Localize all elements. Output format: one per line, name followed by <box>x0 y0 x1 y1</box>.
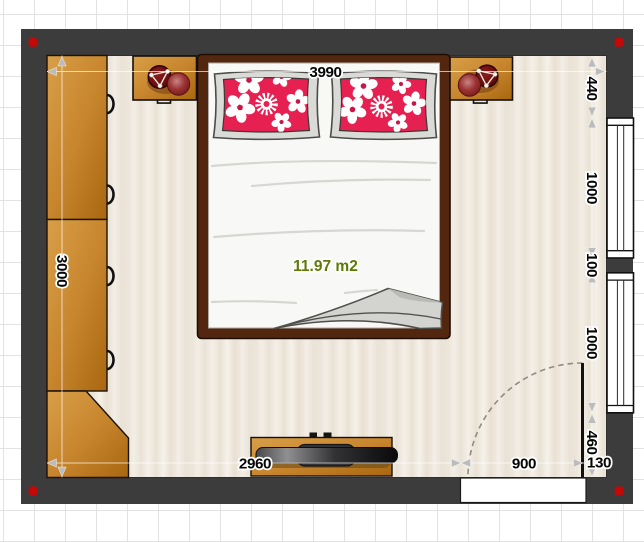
svg-text:440: 440 <box>583 76 600 100</box>
svg-text:130: 130 <box>587 455 611 472</box>
svg-text:900: 900 <box>512 455 536 472</box>
svg-text:3990: 3990 <box>309 64 341 81</box>
svg-text:1000: 1000 <box>583 327 600 359</box>
svg-text:3000: 3000 <box>53 255 70 287</box>
svg-text:11.97 m2: 11.97 m2 <box>293 258 358 275</box>
svg-text:2960: 2960 <box>239 455 271 472</box>
svg-text:100: 100 <box>583 253 600 277</box>
svg-text:1000: 1000 <box>583 172 600 204</box>
svg-text:460: 460 <box>583 430 600 454</box>
